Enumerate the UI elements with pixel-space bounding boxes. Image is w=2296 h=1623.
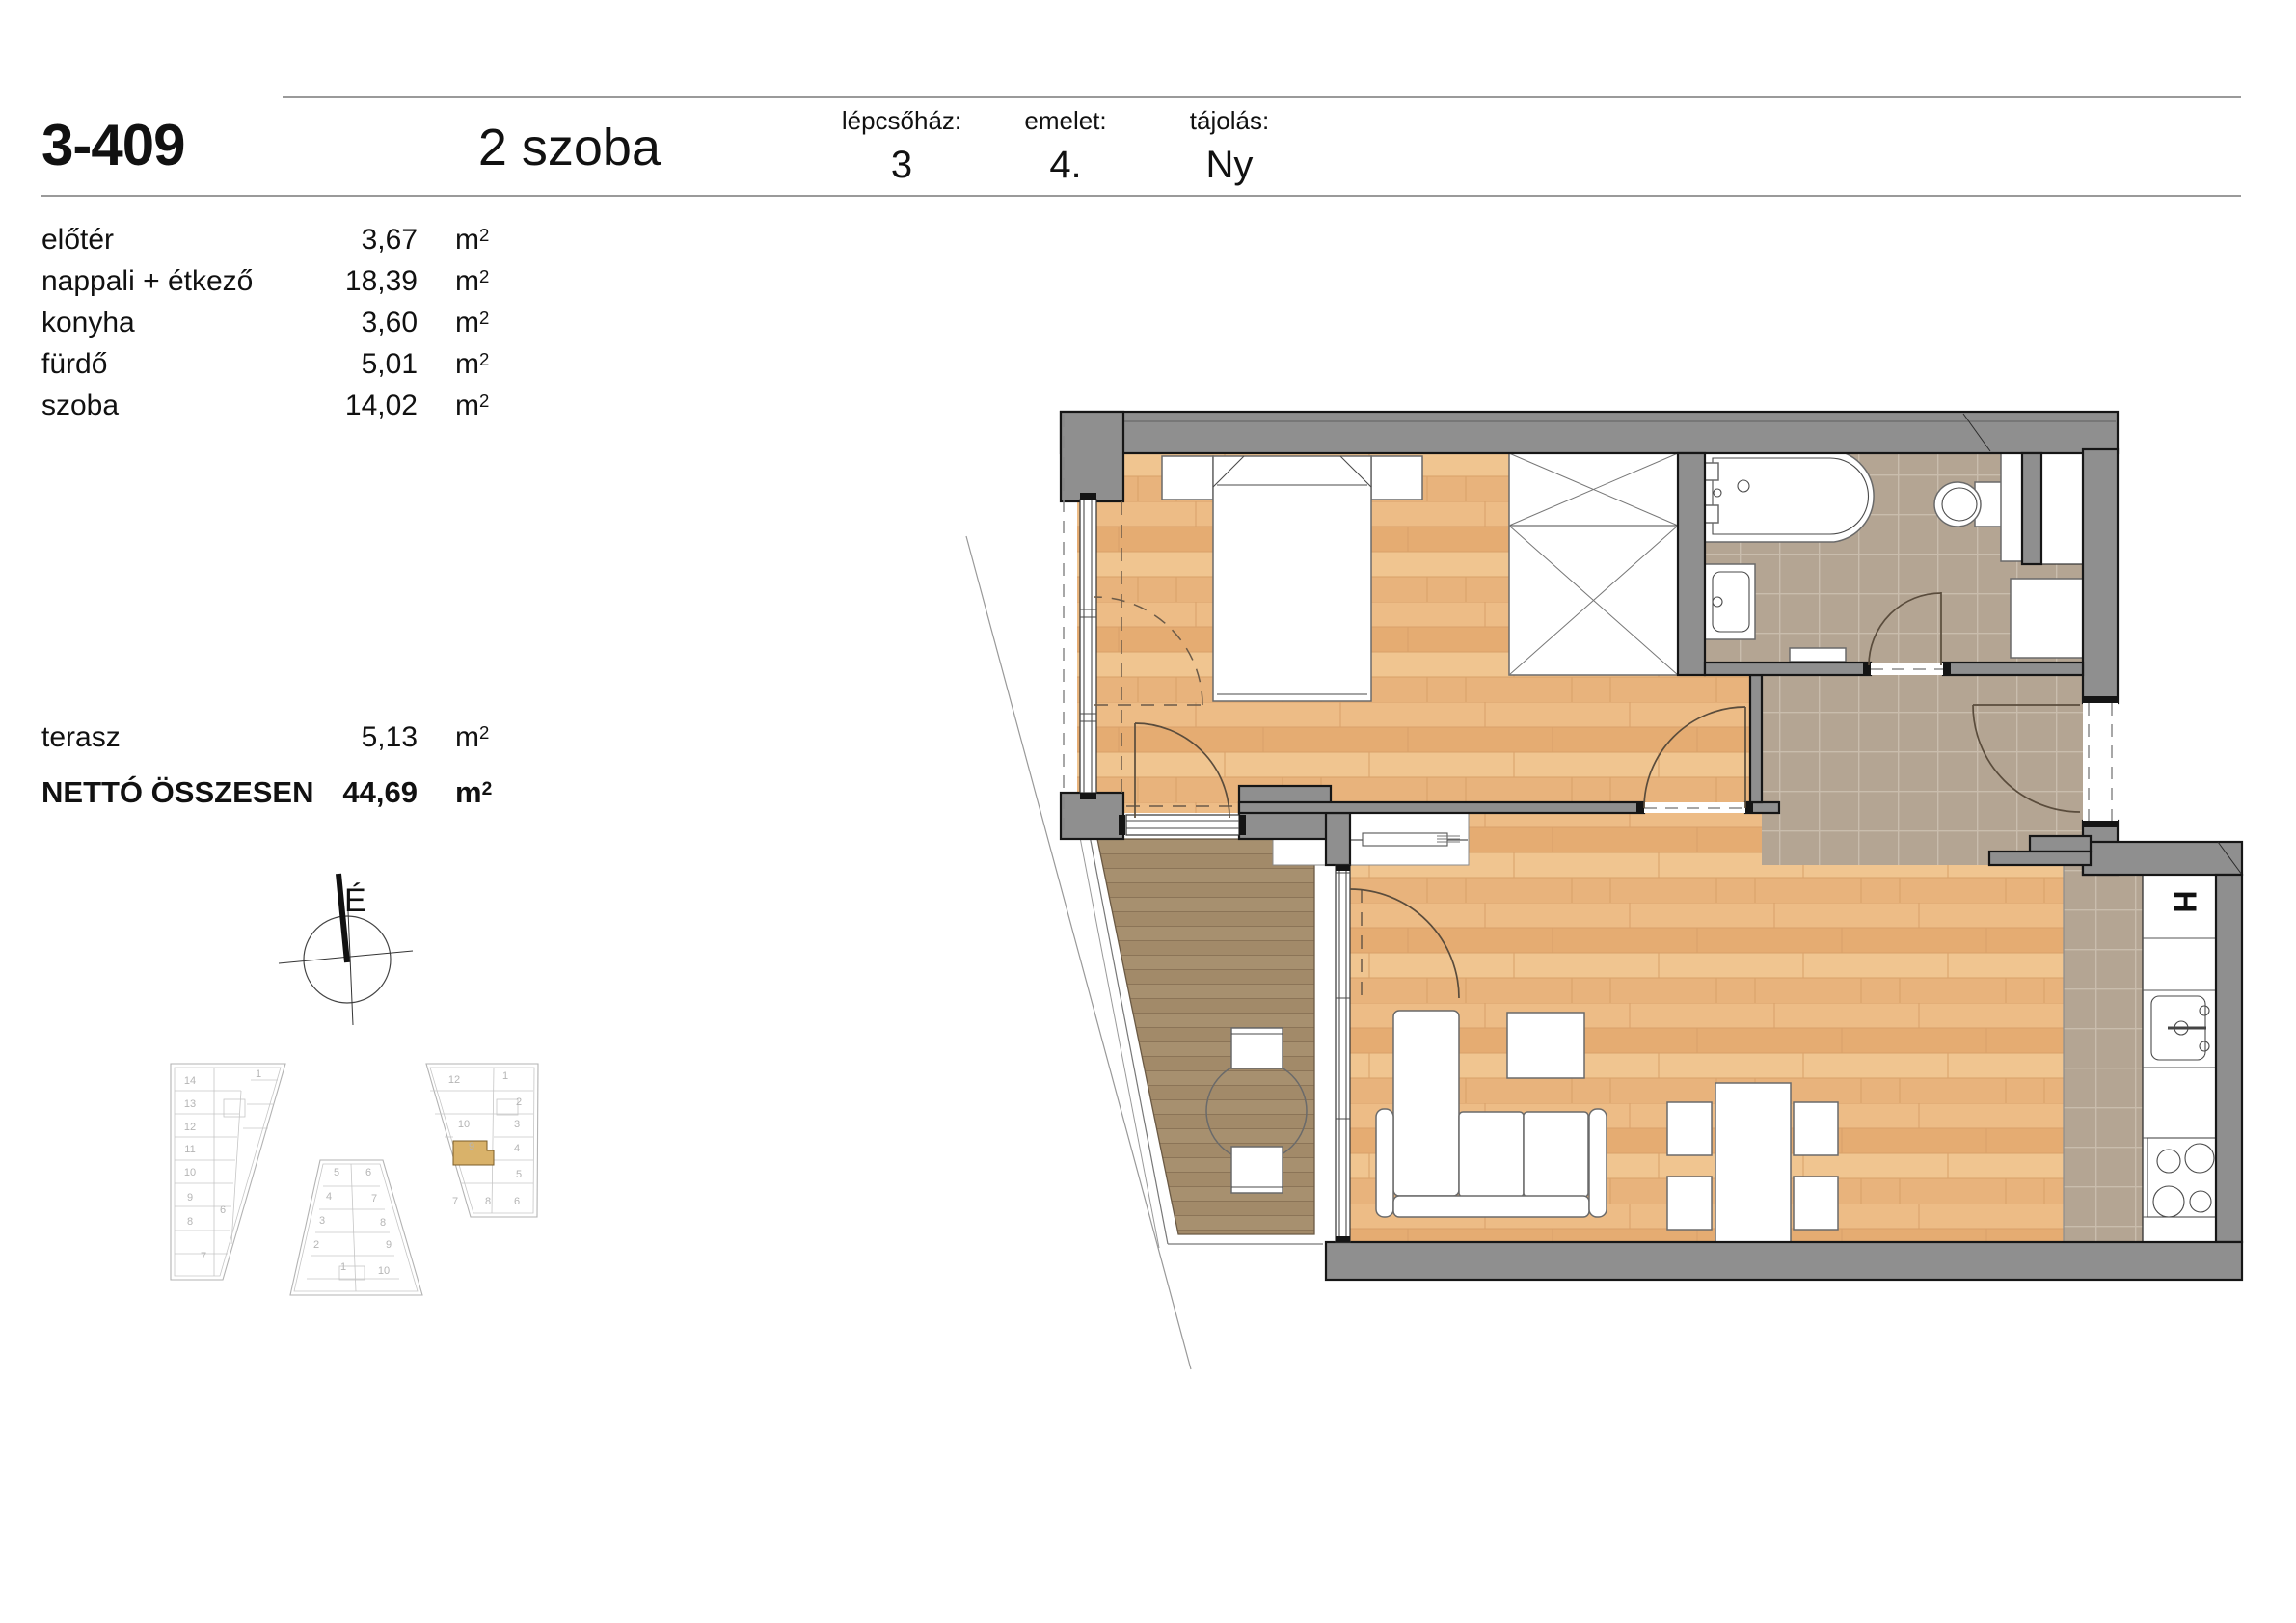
floorplan-graphics: É — [0, 0, 2296, 1623]
shaft-void — [2041, 453, 2083, 564]
site-unit-number: 7 — [201, 1251, 206, 1262]
terrace-chair — [1231, 1147, 1283, 1193]
site-unit-number: 1 — [340, 1261, 346, 1273]
kitchen-counter: H — [2143, 865, 2216, 1242]
site-unit-number: 8 — [380, 1217, 386, 1229]
passage-floor — [1469, 813, 1762, 865]
coffee-table — [1507, 1013, 1584, 1078]
site-plan-unit-numbers: 141312111098716564738291101212310495876 — [184, 1068, 522, 1277]
site-unit-number: 6 — [365, 1167, 371, 1178]
toilet-ledge — [2001, 453, 2022, 561]
toilet — [1934, 482, 2002, 527]
north-compass: É — [279, 874, 413, 1025]
dining-table — [1715, 1083, 1791, 1242]
bed — [1213, 456, 1371, 701]
site-key-plans: 141312111098716564738291101212310495876 — [171, 1064, 538, 1295]
fridge-symbol: H — [2168, 890, 2202, 912]
bedroom-window — [1080, 500, 1096, 793]
site-unit-number: 9 — [386, 1239, 392, 1251]
site-unit-number: 9 — [187, 1192, 193, 1204]
site-building-right — [426, 1064, 538, 1217]
north-label: É — [344, 882, 366, 919]
site-unit-number: 9 — [469, 1141, 474, 1152]
site-unit-number: 4 — [514, 1143, 520, 1154]
site-unit-number: 8 — [187, 1216, 193, 1228]
dining-chair — [1667, 1102, 1712, 1155]
site-unit-number: 5 — [334, 1167, 339, 1178]
site-unit-number: 1 — [502, 1070, 508, 1082]
dining-chair — [1667, 1177, 1712, 1230]
balcony-door-sill — [1126, 815, 1239, 835]
site-unit-number: 3 — [319, 1215, 325, 1227]
site-unit-number: 12 — [184, 1122, 196, 1133]
bathtub — [1705, 450, 1874, 542]
site-unit-number: 8 — [485, 1196, 491, 1207]
site-unit-number: 7 — [371, 1193, 377, 1204]
terrace-glazing — [1336, 865, 1350, 1242]
site-unit-number: 10 — [458, 1119, 470, 1130]
floor-plan: H — [966, 412, 2242, 1369]
site-unit-number: 6 — [220, 1204, 226, 1216]
dining-chair — [1794, 1177, 1838, 1230]
site-unit-number: 3 — [514, 1119, 520, 1130]
site-unit-number: 2 — [313, 1239, 319, 1251]
tv — [1363, 833, 1447, 846]
site-unit-number: 12 — [448, 1074, 460, 1086]
site-unit-number: 2 — [516, 1096, 522, 1108]
site-unit-number: 6 — [514, 1196, 520, 1207]
dining-chair — [1794, 1102, 1838, 1155]
site-unit-number: 7 — [452, 1196, 458, 1207]
nightstand — [1162, 456, 1213, 500]
site-unit-number: 5 — [516, 1169, 522, 1180]
site-unit-number: 1 — [256, 1068, 261, 1080]
kitchen-floor — [2064, 865, 2143, 1242]
floorplan-sheet: 3-409 2 szoba lépcsőház: 3 emelet: 4. tá… — [0, 0, 2296, 1623]
site-unit-number: 10 — [378, 1265, 390, 1277]
site-unit-number: 4 — [326, 1191, 332, 1203]
site-unit-number: 11 — [184, 1144, 195, 1155]
wardrobe — [1509, 453, 1678, 675]
nightstand — [1371, 456, 1422, 500]
bathroom-sink — [1705, 564, 1755, 639]
site-unit-number: 13 — [184, 1098, 196, 1110]
site-building-middle — [290, 1160, 422, 1295]
bathroom-shelf — [1790, 648, 1846, 662]
site-unit-number: 14 — [184, 1075, 196, 1087]
site-unit-number: 10 — [184, 1167, 196, 1178]
washing-machine — [2011, 579, 2084, 658]
